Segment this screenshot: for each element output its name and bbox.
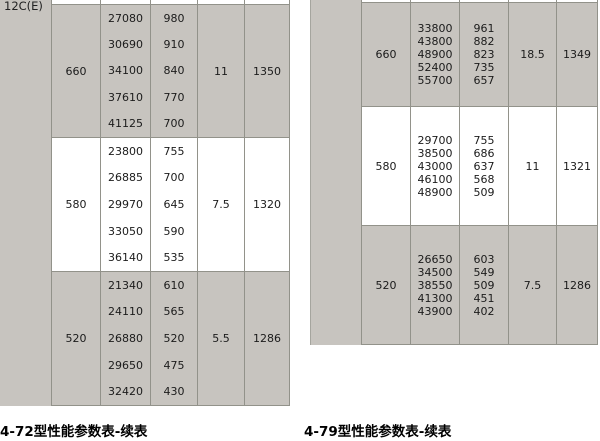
value-d: 1349 xyxy=(563,48,591,61)
table-4-79: 660 33800 43800 48900 52400 55700 961 88… xyxy=(310,0,598,345)
value-a: 41125 xyxy=(108,117,143,130)
value-c-cell: 11 xyxy=(198,5,245,137)
value-a: 23800 xyxy=(108,145,143,158)
value-a: 26885 xyxy=(108,171,143,184)
value-b: 980 xyxy=(164,12,185,25)
group-cell: 580 xyxy=(362,107,411,225)
table-4-79-caption: 4-79型性能参数表-续表 xyxy=(304,420,451,440)
values-a-cell: 26650 34500 38550 41300 43900 xyxy=(411,226,460,344)
value-d: 1350 xyxy=(253,65,281,78)
value-b: 565 xyxy=(164,305,185,318)
group-cell: 660 xyxy=(362,3,411,106)
table-section-520: 520 21340 24110 26880 29650 32420 610 56… xyxy=(52,272,290,406)
table-4-72-caption: 4-72型性能参数表-续表 xyxy=(0,420,147,440)
value-c-cell: 18.5 xyxy=(509,3,557,106)
value-b: 430 xyxy=(164,385,185,398)
value-a: 46100 xyxy=(418,173,453,186)
value-b: 535 xyxy=(164,251,185,264)
table-4-72-grid: 660 27080 30690 34100 37610 41125 980 91… xyxy=(52,0,290,406)
value-a: 48900 xyxy=(418,186,453,199)
value-c-cell: 7.5 xyxy=(509,226,557,344)
value-b: 823 xyxy=(474,48,495,61)
value-a: 26880 xyxy=(108,332,143,345)
group-value: 520 xyxy=(376,279,397,292)
values-b-cell: 755 686 637 568 509 xyxy=(460,107,509,225)
value-a: 29970 xyxy=(108,198,143,211)
value-a: 21340 xyxy=(108,279,143,292)
value-a: 38500 xyxy=(418,147,453,160)
table-section-580: 580 23800 26885 29970 33050 36140 755 70… xyxy=(52,138,290,272)
value-b: 520 xyxy=(164,332,185,345)
value-c: 5.5 xyxy=(212,332,230,345)
value-c: 7.5 xyxy=(212,198,230,211)
value-b: 549 xyxy=(474,266,495,279)
value-d: 1321 xyxy=(563,160,591,173)
values-b-cell: 961 882 823 735 657 xyxy=(460,3,509,106)
value-a: 55700 xyxy=(418,74,453,87)
value-c: 7.5 xyxy=(524,279,542,292)
value-a: 52400 xyxy=(418,61,453,74)
value-a: 37610 xyxy=(108,91,143,104)
value-a: 43800 xyxy=(418,35,453,48)
value-d-cell: 1286 xyxy=(557,226,598,344)
value-c-cell: 5.5 xyxy=(198,272,245,405)
group-value: 660 xyxy=(376,48,397,61)
value-b: 603 xyxy=(474,253,495,266)
value-b: 610 xyxy=(164,279,185,292)
value-a: 26650 xyxy=(418,253,453,266)
stub-cell xyxy=(509,0,557,2)
value-a: 30690 xyxy=(108,38,143,51)
value-c-cell: 11 xyxy=(509,107,557,225)
stub-cell xyxy=(460,0,509,2)
value-a: 27080 xyxy=(108,12,143,25)
value-a: 33050 xyxy=(108,225,143,238)
value-c-cell: 7.5 xyxy=(198,138,245,271)
value-a: 36140 xyxy=(108,251,143,264)
stub-cell xyxy=(362,0,411,2)
group-value: 660 xyxy=(66,65,87,78)
value-d-cell: 1286 xyxy=(245,272,290,405)
value-a: 24110 xyxy=(108,305,143,318)
table-section-580: 580 29700 38500 43000 46100 48900 755 68… xyxy=(362,107,598,226)
values-a-cell: 33800 43800 48900 52400 55700 xyxy=(411,3,460,106)
value-b: 910 xyxy=(164,38,185,51)
values-b-cell: 980 910 840 770 700 xyxy=(151,5,198,137)
table-4-79-merged-first-column xyxy=(310,0,362,345)
table-4-72-merged-first-column: 12C(E) xyxy=(0,0,52,406)
value-d: 1286 xyxy=(563,279,591,292)
value-b: 961 xyxy=(474,22,495,35)
value-a: 34100 xyxy=(108,64,143,77)
group-value: 580 xyxy=(66,198,87,211)
values-a-cell: 29700 38500 43000 46100 48900 xyxy=(411,107,460,225)
group-cell: 520 xyxy=(52,272,101,405)
value-d: 1320 xyxy=(253,198,281,211)
value-b: 568 xyxy=(474,173,495,186)
stub-cell xyxy=(557,0,598,2)
value-a: 43000 xyxy=(418,160,453,173)
value-d-cell: 1349 xyxy=(557,3,598,106)
table-4-79-grid: 660 33800 43800 48900 52400 55700 961 88… xyxy=(362,0,598,345)
stub-cell xyxy=(101,0,151,4)
value-b: 590 xyxy=(164,225,185,238)
group-cell: 520 xyxy=(362,226,411,344)
table-section-660: 660 27080 30690 34100 37610 41125 980 91… xyxy=(52,5,290,138)
value-b: 882 xyxy=(474,35,495,48)
value-c: 11 xyxy=(526,160,540,173)
value-a: 43900 xyxy=(418,305,453,318)
value-b: 686 xyxy=(474,147,495,160)
stub-cell xyxy=(245,0,290,4)
value-a: 34500 xyxy=(418,266,453,279)
value-a: 41300 xyxy=(418,292,453,305)
group-value: 580 xyxy=(376,160,397,173)
value-b: 509 xyxy=(474,279,495,292)
values-a-cell: 21340 24110 26880 29650 32420 xyxy=(101,272,151,405)
table-4-72: 12C(E) 660 27080 30690 34100 37610 xyxy=(0,0,290,406)
stub-cell xyxy=(151,0,198,4)
stub-cell xyxy=(52,0,101,4)
value-d-cell: 1320 xyxy=(245,138,290,271)
value-a: 48900 xyxy=(418,48,453,61)
values-b-cell: 755 700 645 590 535 xyxy=(151,138,198,271)
value-d: 1286 xyxy=(253,332,281,345)
value-b: 645 xyxy=(164,198,185,211)
value-b: 840 xyxy=(164,64,185,77)
table-section-520: 520 26650 34500 38550 41300 43900 603 54… xyxy=(362,226,598,345)
value-a: 29650 xyxy=(108,359,143,372)
values-a-cell: 23800 26885 29970 33050 36140 xyxy=(101,138,151,271)
value-a: 29700 xyxy=(418,134,453,147)
value-c: 18.5 xyxy=(520,48,545,61)
value-b: 402 xyxy=(474,305,495,318)
values-a-cell: 27080 30690 34100 37610 41125 xyxy=(101,5,151,137)
values-b-cell: 603 549 509 451 402 xyxy=(460,226,509,344)
value-b: 475 xyxy=(164,359,185,372)
value-a: 38550 xyxy=(418,279,453,292)
value-c: 11 xyxy=(214,65,228,78)
group-cell: 660 xyxy=(52,5,101,137)
value-b: 700 xyxy=(164,117,185,130)
value-b: 509 xyxy=(474,186,495,199)
stub-cell xyxy=(198,0,245,4)
document-page: 12C(E) 660 27080 30690 34100 37610 xyxy=(0,0,600,441)
table-section-660: 660 33800 43800 48900 52400 55700 961 88… xyxy=(362,3,598,107)
group-value: 520 xyxy=(66,332,87,345)
values-b-cell: 610 565 520 475 430 xyxy=(151,272,198,405)
value-b: 735 xyxy=(474,61,495,74)
group-cell: 580 xyxy=(52,138,101,271)
value-b: 451 xyxy=(474,292,495,305)
value-d-cell: 1350 xyxy=(245,5,290,137)
value-b: 770 xyxy=(164,91,185,104)
value-a: 33800 xyxy=(418,22,453,35)
value-b: 657 xyxy=(474,74,495,87)
value-d-cell: 1321 xyxy=(557,107,598,225)
value-b: 700 xyxy=(164,171,185,184)
model-label: 12C(E) xyxy=(4,0,43,13)
value-a: 32420 xyxy=(108,385,143,398)
value-b: 755 xyxy=(474,134,495,147)
value-b: 755 xyxy=(164,145,185,158)
stub-cell xyxy=(411,0,460,2)
value-b: 637 xyxy=(474,160,495,173)
